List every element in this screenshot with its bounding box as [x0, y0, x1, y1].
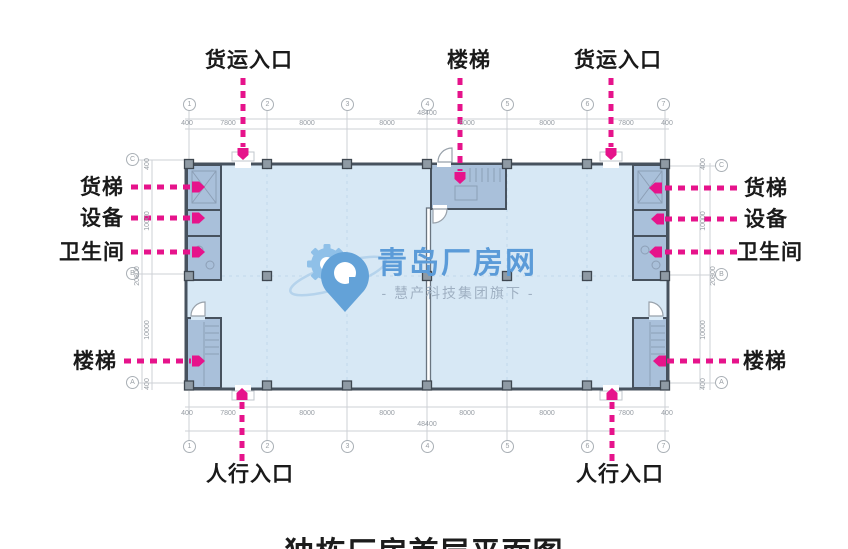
dim-bottom-seg-6: 8000 — [525, 410, 569, 418]
dim-left-seg-2: 10000 — [144, 199, 152, 243]
label-freight-entrance-left: 货运入口 — [205, 49, 293, 73]
label-equipment-right: 设备 — [744, 208, 788, 232]
label-pedestrian-entrance-right: 人行入口 — [576, 463, 664, 487]
dim-bottom-seg-2: 7800 — [206, 410, 250, 418]
label-stairs-right: 楼梯 — [743, 350, 787, 374]
grid-bubble-6-bottom: 6 — [581, 440, 594, 453]
dim-bottom-seg-7: 7800 — [604, 410, 648, 418]
grid-bubble-6-top: 6 — [581, 98, 594, 111]
dim-top-total: 48400 — [405, 110, 449, 118]
grid-bubble-2-bottom: 2 — [261, 440, 274, 453]
label-restroom-left: 卫生间 — [59, 241, 125, 265]
dim-left-seg-4: 400 — [144, 362, 152, 406]
dim-bottom-total: 48400 — [405, 421, 449, 429]
label-freight-elevator-left: 货梯 — [80, 176, 124, 200]
page-title: 独栋厂房首层平面图 — [0, 528, 848, 549]
grid-bubble-3-bottom: 3 — [341, 440, 354, 453]
dim-bottom-seg-4: 8000 — [365, 410, 409, 418]
grid-bubble-7-bottom: 7 — [657, 440, 670, 453]
dim-top-seg-1: 400 — [165, 120, 209, 128]
grid-bubble-4-bottom: 4 — [421, 440, 434, 453]
grid-bubble-5-top: 5 — [501, 98, 514, 111]
label-freight-elevator-right: 货梯 — [744, 177, 788, 201]
grid-bubble-1-top: 1 — [183, 98, 196, 111]
dim-bottom-seg-1: 400 — [165, 410, 209, 418]
dim-right-seg-1: 400 — [700, 142, 708, 186]
watermark-subtitle: - 慧产科技集团旗下 - — [376, 284, 540, 302]
label-equipment-left: 设备 — [80, 207, 124, 231]
grid-bubble-7-top: 7 — [657, 98, 670, 111]
dim-top-seg-2: 7800 — [206, 120, 250, 128]
grid-bubble-C-left: C — [126, 153, 139, 166]
dim-right-seg-3: 10000 — [700, 308, 708, 352]
dim-right-total: 20800 — [710, 254, 718, 298]
dim-left-total: 20800 — [134, 254, 142, 298]
grid-bubble-A-right: A — [715, 376, 728, 389]
grid-bubble-2-top: 2 — [261, 98, 274, 111]
dim-top-seg-6: 8000 — [525, 120, 569, 128]
watermark-brand: 青岛厂房网 — [377, 247, 537, 281]
grid-bubble-A-left: A — [126, 376, 139, 389]
floor-plan-page: 货运入口 楼梯 货运入口 货梯 设备 卫生间 楼梯 货梯 设备 卫生间 楼梯 人… — [0, 0, 848, 549]
grid-bubble-3-top: 3 — [341, 98, 354, 111]
dim-bottom-seg-3: 8000 — [285, 410, 329, 418]
dim-right-seg-2: 10000 — [700, 199, 708, 243]
label-stairs-left: 楼梯 — [73, 350, 117, 374]
dim-bottom-seg-5: 8000 — [445, 410, 489, 418]
dim-top-seg-5: 8000 — [445, 120, 489, 128]
grid-bubble-5-bottom: 5 — [501, 440, 514, 453]
dim-left-seg-1: 400 — [144, 142, 152, 186]
dim-top-seg-4: 8000 — [365, 120, 409, 128]
dim-top-seg-3: 8000 — [285, 120, 329, 128]
dim-top-seg-7: 7800 — [604, 120, 648, 128]
dim-left-seg-3: 10000 — [144, 308, 152, 352]
grid-bubble-C-right: C — [715, 159, 728, 172]
label-stairs-top: 楼梯 — [447, 49, 491, 73]
grid-bubble-1-bottom: 1 — [183, 440, 196, 453]
dim-top-seg-8: 400 — [645, 120, 689, 128]
label-pedestrian-entrance-left: 人行入口 — [206, 463, 294, 487]
label-restroom-right: 卫生间 — [737, 241, 803, 265]
dim-bottom-seg-8: 400 — [645, 410, 689, 418]
dim-right-seg-4: 400 — [700, 362, 708, 406]
label-freight-entrance-right: 货运入口 — [574, 49, 662, 73]
